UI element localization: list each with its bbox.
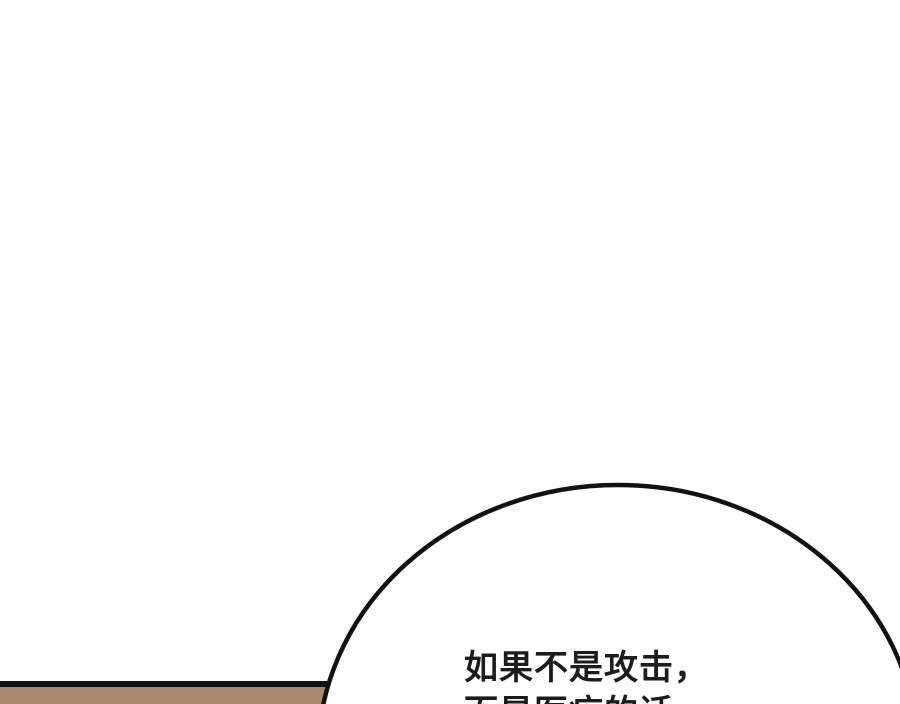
speech-bubble-text: 如果不是攻击， 而是医疗的话	[464, 646, 709, 704]
speech-line-2: 而是医疗的话	[464, 691, 709, 704]
speech-line-1: 如果不是攻击，	[464, 646, 709, 691]
speech-bubble-layer	[0, 0, 900, 704]
comic-panel: 如果不是攻击， 而是医疗的话	[0, 0, 900, 704]
